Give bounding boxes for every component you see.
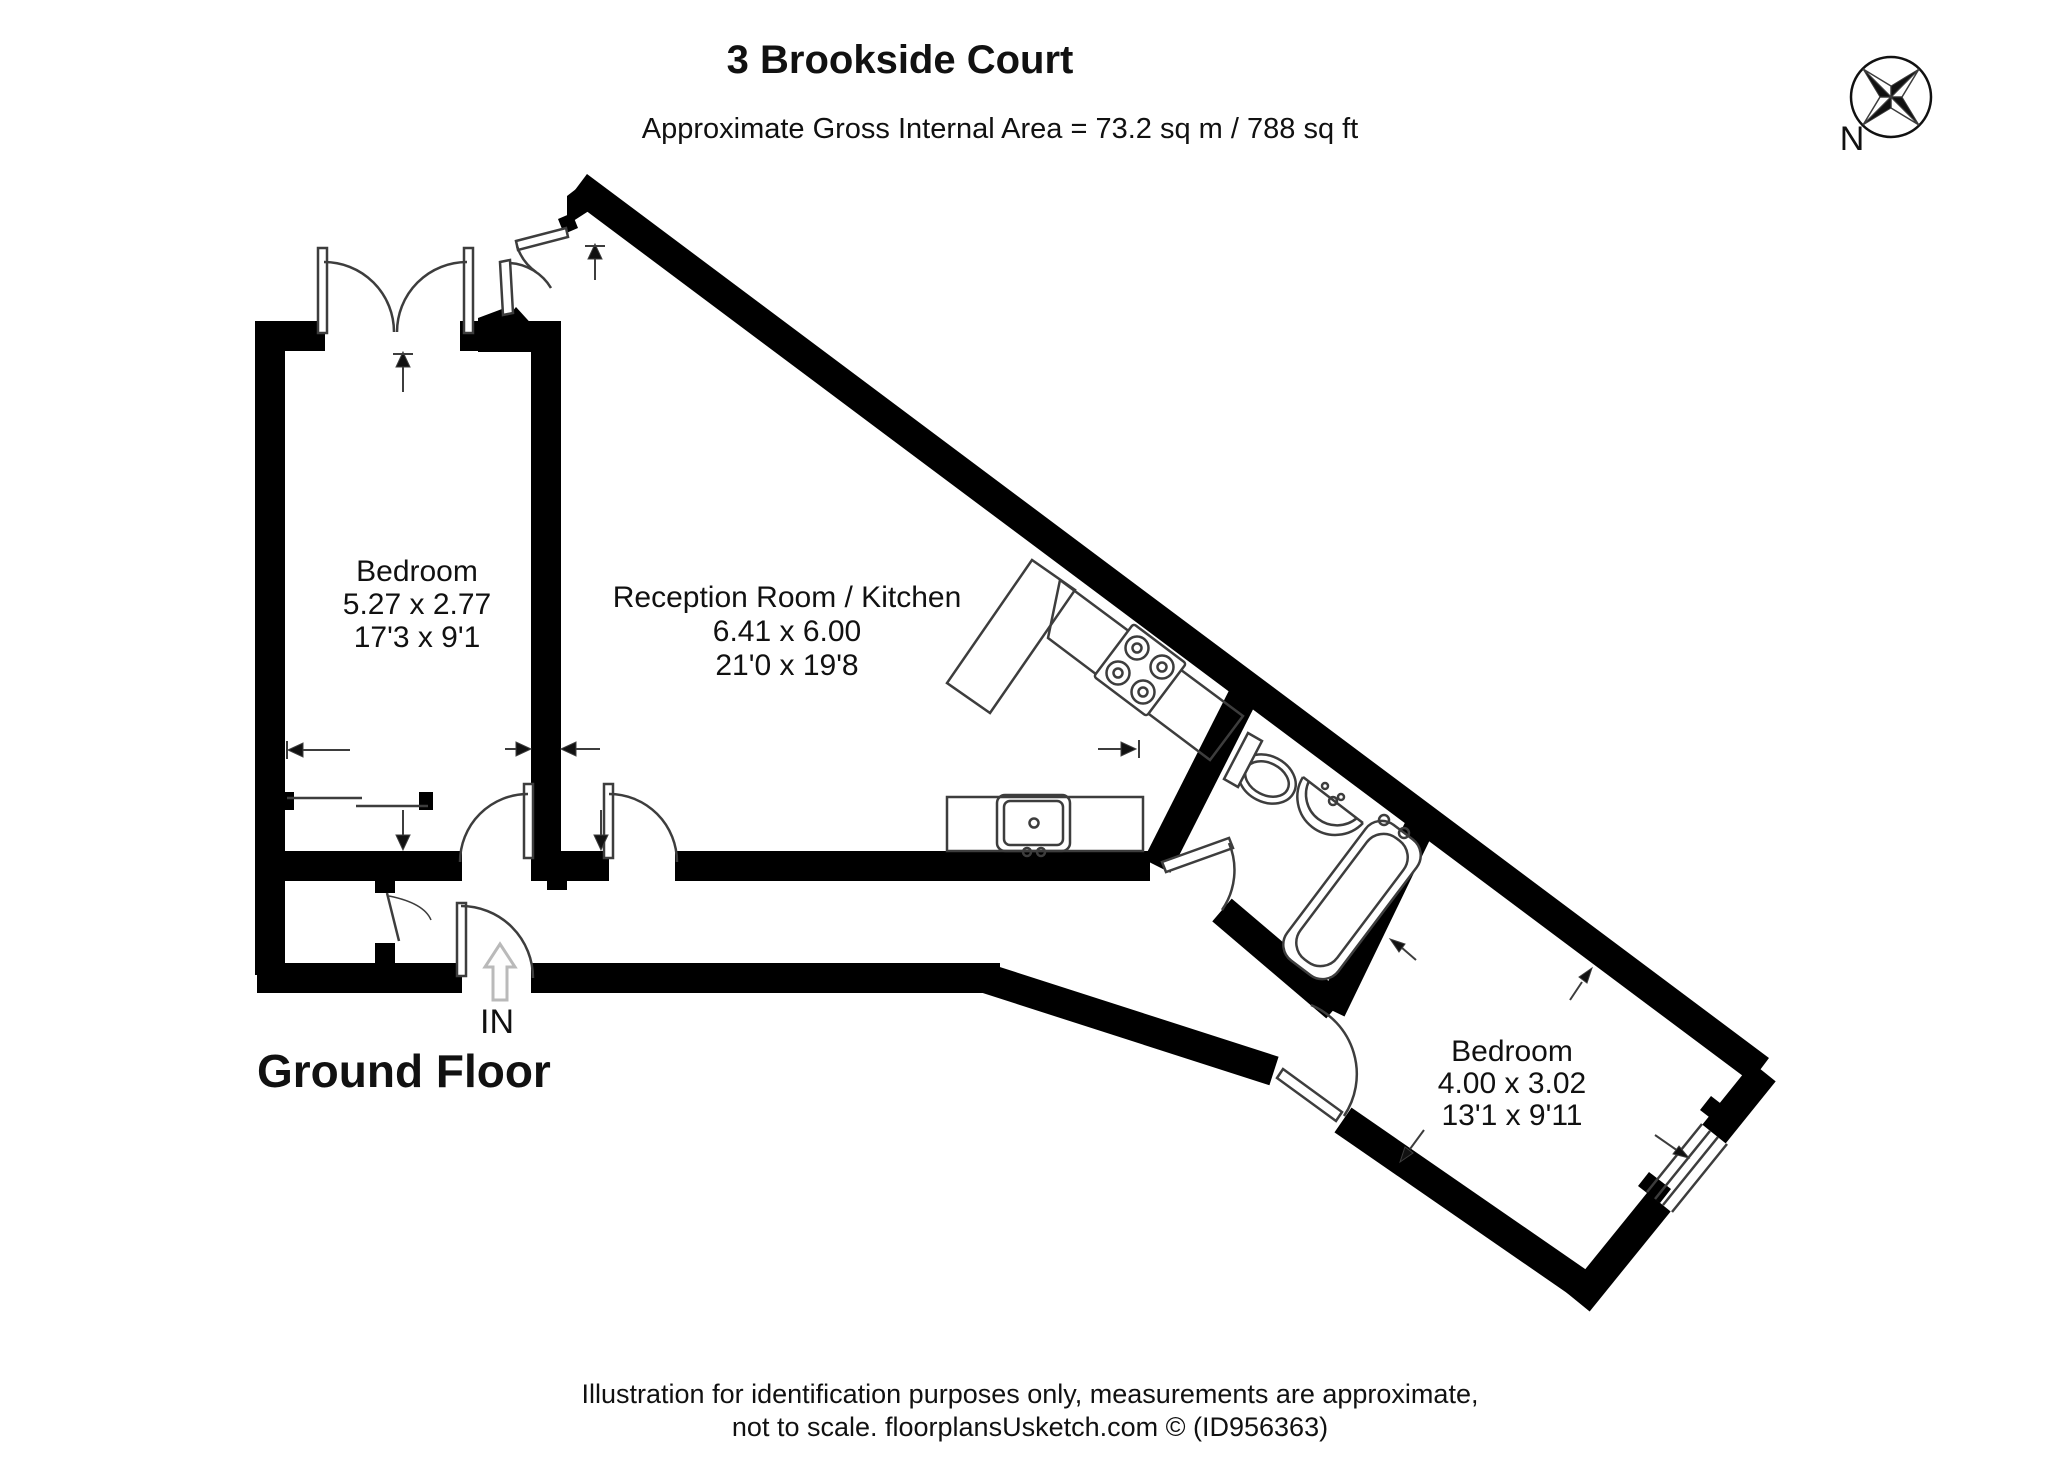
room-dims-imperial: 17'3 x 9'1 <box>354 621 481 654</box>
room-label-bedroom-1: Bedroom 5.27 x 2.77 17'3 x 9'1 <box>343 555 491 654</box>
room-label-reception-kitchen: Reception Room / Kitchen 6.41 x 6.00 21'… <box>613 581 962 682</box>
room-dims-imperial: 21'0 x 19'8 <box>715 649 858 682</box>
room-dims-metric: 6.41 x 6.00 <box>713 615 861 648</box>
room-dims-metric: 5.27 x 2.77 <box>343 588 491 621</box>
room-label-bedroom-2: Bedroom 4.00 x 3.02 13'1 x 9'11 <box>1438 1035 1586 1132</box>
disclaimer-line-2: not to scale. floorplansUsketch.com © (I… <box>732 1412 1328 1442</box>
room-name: Reception Room / Kitchen <box>613 581 962 614</box>
floor-label: Ground Floor <box>257 1045 551 1097</box>
floorplan-drawing <box>255 57 1931 1302</box>
room-dims-imperial: 13'1 x 9'11 <box>1441 1099 1582 1132</box>
entrance-in-label: IN <box>480 1003 514 1041</box>
page-title: 3 Brookside Court <box>727 38 1074 82</box>
room-name: Bedroom <box>1451 1035 1573 1068</box>
floorplan-page: 3 Brookside Court Approximate Gross Inte… <box>0 0 2048 1479</box>
disclaimer-line-1: Illustration for identification purposes… <box>582 1379 1479 1409</box>
room-name: Bedroom <box>356 555 478 588</box>
floorplan-svg: 3 Brookside Court Approximate Gross Inte… <box>0 0 2048 1479</box>
room-dims-metric: 4.00 x 3.02 <box>1438 1067 1586 1100</box>
compass-north-label: N <box>1840 120 1865 158</box>
area-subtitle: Approximate Gross Internal Area = 73.2 s… <box>642 113 1359 145</box>
